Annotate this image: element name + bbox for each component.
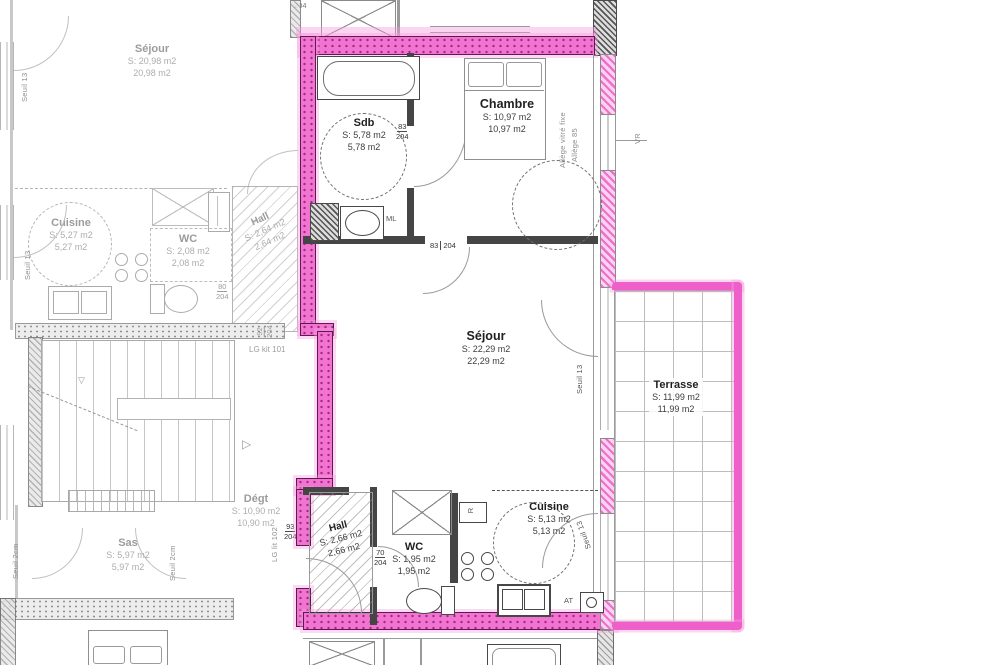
duct-shaft xyxy=(152,188,214,226)
sink-basin xyxy=(53,291,79,314)
terrace-outline-bottom xyxy=(612,622,742,630)
wall xyxy=(420,638,422,665)
wall-highlighted xyxy=(600,170,616,288)
door-ref-label: LG kit 101 xyxy=(249,345,285,354)
door-dimension: 92 204 xyxy=(255,325,274,338)
duct-shaft xyxy=(309,641,375,665)
wall xyxy=(0,598,16,665)
small-basin-drain xyxy=(586,597,597,608)
wall xyxy=(0,598,234,620)
direction-arrow-icon: ▽ xyxy=(78,376,85,385)
threshold-label: Seuil 2cm xyxy=(168,535,177,581)
washing-machine-label: ML xyxy=(386,214,396,223)
wall-highlighted xyxy=(317,331,333,493)
room-label-sejour-left: Séjour S: 20,98 m2 20,98 m2 xyxy=(128,42,177,80)
washbasin-bowl xyxy=(345,210,380,236)
allege-label: Allège vitré fixe xyxy=(558,104,567,168)
duct-shaft xyxy=(392,490,452,535)
vent-line xyxy=(217,196,218,226)
threshold-label: Seuil 2cm xyxy=(11,535,20,579)
window xyxy=(0,425,14,520)
door-dimension: 83 204 xyxy=(396,122,409,141)
wall xyxy=(15,323,285,339)
bed-pillow xyxy=(506,62,542,87)
threshold-label: Seuil 13 xyxy=(575,356,584,394)
room-label-sejour-main: Séjour S: 22,29 m2 22,29 m2 xyxy=(462,328,511,368)
door-arc xyxy=(414,126,467,187)
floor-plan: Seuil 13 Séjour S: 20,98 m2 20,98 m2 Cui… xyxy=(0,0,1000,665)
toilet-tank xyxy=(150,284,165,314)
sink-basin xyxy=(81,291,107,314)
open-boundary xyxy=(492,490,598,491)
room-label-terrasse: Terrasse S: 11,99 m2 11,99 m2 xyxy=(649,378,703,416)
direction-arrow-icon: ▷ xyxy=(242,438,251,450)
terrace-tiles xyxy=(614,290,736,624)
stairs xyxy=(41,340,235,502)
radiator xyxy=(68,490,155,512)
door-arc xyxy=(423,247,470,294)
room-label-wc-main: WC S: 1,95 m2 1,95 m2 xyxy=(392,540,436,578)
stair-rail xyxy=(117,398,231,420)
shutter-label: VR xyxy=(633,124,642,144)
terrace-outline-top xyxy=(612,282,742,290)
room-label-sdb: Sdb S: 5,78 m2 5,78 m2 xyxy=(342,116,386,154)
bed-pillow xyxy=(93,646,125,664)
door-arc xyxy=(541,300,598,357)
wall-highlighted xyxy=(303,612,616,630)
wall-highlighted xyxy=(600,54,616,115)
threshold-label: Seuil 13 xyxy=(20,60,29,102)
window xyxy=(0,42,14,130)
room-label-chambre: Chambre S: 10,97 m2 10,97 m2 xyxy=(480,96,534,136)
wall xyxy=(383,638,385,665)
wall-highlighted xyxy=(300,36,595,55)
door-ref-label: LG lit 102 xyxy=(270,502,279,562)
door-dimension: 93 204 xyxy=(284,522,297,541)
door-dimension: 80 204 xyxy=(216,282,229,301)
sink-basin xyxy=(524,589,545,610)
toilet-bowl xyxy=(164,285,198,313)
room-label-sas: Sas S: 5,97 m2 5,97 m2 xyxy=(106,536,150,574)
door-arc xyxy=(32,528,83,579)
bed-pillow xyxy=(468,62,504,87)
hall-floor-hatch xyxy=(232,186,298,332)
bed-pillow xyxy=(130,646,162,664)
wall xyxy=(10,190,13,330)
stove-burners xyxy=(112,250,154,285)
toilet-bowl xyxy=(406,588,442,614)
toilet-tank xyxy=(441,586,455,615)
bed-line xyxy=(464,90,544,91)
wall-line xyxy=(303,638,600,639)
turning-circle xyxy=(512,160,602,250)
partition-wall xyxy=(407,188,414,241)
vent-duct xyxy=(208,192,230,232)
sink-basin xyxy=(502,589,523,610)
bathtub-inner xyxy=(323,61,415,96)
fridge-label: R xyxy=(466,508,475,513)
wall xyxy=(597,630,614,665)
wall-highlighted xyxy=(300,36,316,333)
duct-block xyxy=(310,203,339,241)
tick-line xyxy=(615,140,647,141)
room-label-wc-left: WC S: 2,08 m2 2,08 m2 xyxy=(166,232,210,270)
bathtub-inner xyxy=(492,648,556,665)
window xyxy=(600,113,616,170)
wall xyxy=(593,0,617,56)
allege-label: Allège 85 xyxy=(570,118,579,162)
at-label: AT xyxy=(564,596,573,605)
terrace-outline-right xyxy=(734,282,742,630)
